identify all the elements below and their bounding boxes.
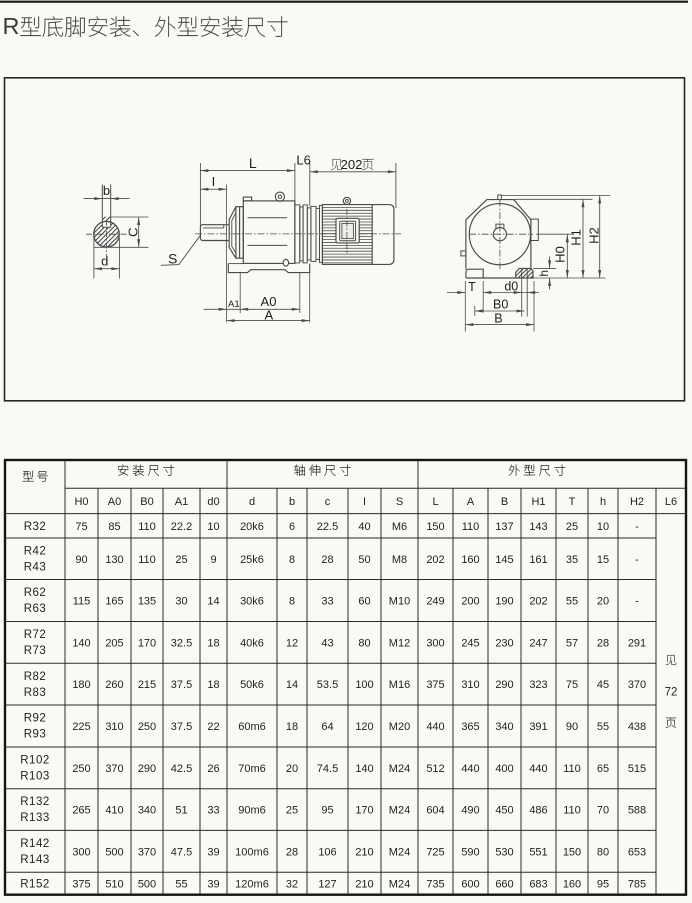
svg-text:H2: H2 — [586, 227, 601, 244]
svg-text:M8: M8 — [392, 554, 407, 566]
svg-text:h: h — [537, 270, 551, 277]
svg-text:S: S — [168, 251, 177, 267]
svg-text:-: - — [635, 554, 639, 566]
svg-text:M6: M6 — [392, 521, 407, 533]
svg-text:683: 683 — [529, 878, 547, 890]
svg-text:30: 30 — [175, 596, 187, 608]
svg-text:T: T — [569, 496, 576, 508]
svg-text:375: 375 — [72, 878, 90, 890]
svg-text:202: 202 — [426, 554, 444, 566]
svg-text:140: 140 — [72, 637, 90, 649]
svg-text:72: 72 — [665, 687, 678, 699]
svg-text:R92: R92 — [24, 713, 47, 725]
svg-text:265: 265 — [72, 805, 90, 817]
svg-text:14: 14 — [207, 596, 219, 608]
svg-text:310: 310 — [461, 679, 479, 691]
svg-text:604: 604 — [426, 805, 444, 817]
svg-text:370: 370 — [138, 846, 156, 858]
svg-text:18: 18 — [207, 679, 219, 691]
svg-text:90: 90 — [566, 721, 578, 733]
svg-text:15: 15 — [597, 554, 609, 566]
svg-text:A: A — [264, 307, 273, 322]
svg-text:R63: R63 — [24, 603, 47, 615]
svg-text:d0: d0 — [207, 496, 219, 508]
svg-text:486: 486 — [529, 805, 547, 817]
svg-text:14: 14 — [286, 679, 298, 691]
svg-text:20: 20 — [286, 763, 298, 775]
svg-text:80: 80 — [358, 637, 370, 649]
svg-text:137: 137 — [495, 521, 513, 533]
svg-text:M24: M24 — [389, 846, 410, 858]
svg-text:95: 95 — [597, 878, 609, 890]
svg-text:R43: R43 — [24, 561, 47, 573]
svg-text:R72: R72 — [24, 629, 47, 641]
svg-text:B0: B0 — [140, 496, 153, 508]
svg-text:735: 735 — [426, 878, 444, 890]
svg-text:9: 9 — [210, 554, 216, 566]
svg-text:25k6: 25k6 — [240, 554, 264, 566]
svg-text:400: 400 — [495, 763, 513, 775]
svg-text:205: 205 — [105, 637, 123, 649]
svg-text:100: 100 — [355, 679, 373, 691]
svg-text:55: 55 — [566, 596, 578, 608]
svg-text:R: R — [3, 13, 20, 39]
svg-text:300: 300 — [426, 637, 444, 649]
svg-text:150: 150 — [426, 521, 444, 533]
svg-text:37.5: 37.5 — [171, 679, 192, 691]
svg-text:160: 160 — [461, 554, 479, 566]
svg-text:R152: R152 — [20, 878, 50, 890]
svg-text:8: 8 — [289, 596, 295, 608]
svg-text:T: T — [468, 280, 476, 294]
svg-text:127: 127 — [318, 878, 336, 890]
svg-text:H0: H0 — [74, 496, 88, 508]
svg-text:210: 210 — [355, 846, 373, 858]
svg-text:160: 160 — [563, 878, 581, 890]
svg-text:291: 291 — [628, 637, 646, 649]
svg-text:39: 39 — [207, 878, 219, 890]
svg-text:H1: H1 — [569, 229, 584, 246]
svg-text:450: 450 — [495, 805, 513, 817]
svg-text:249: 249 — [426, 596, 444, 608]
svg-text:130: 130 — [105, 554, 123, 566]
svg-text:50k6: 50k6 — [240, 679, 264, 691]
svg-text:161: 161 — [529, 554, 547, 566]
svg-text:600: 600 — [461, 878, 479, 890]
svg-text:500: 500 — [105, 846, 123, 858]
svg-text:R142: R142 — [20, 838, 50, 850]
svg-text:R103: R103 — [20, 771, 50, 783]
svg-text:70: 70 — [597, 805, 609, 817]
svg-text:45: 45 — [597, 679, 609, 691]
svg-text:R42: R42 — [24, 545, 47, 557]
svg-text:40: 40 — [358, 521, 370, 533]
svg-text:245: 245 — [461, 637, 479, 649]
svg-text:35: 35 — [566, 554, 578, 566]
svg-text:590: 590 — [461, 846, 479, 858]
svg-text:R32: R32 — [24, 521, 47, 533]
svg-text:110: 110 — [138, 554, 156, 566]
svg-text:22.2: 22.2 — [171, 521, 192, 533]
svg-text:18: 18 — [286, 721, 298, 733]
svg-text:H1: H1 — [531, 496, 545, 508]
svg-text:300: 300 — [72, 846, 90, 858]
svg-text:A: A — [467, 496, 475, 508]
svg-text:515: 515 — [628, 763, 646, 775]
svg-text:106: 106 — [318, 846, 336, 858]
svg-text:165: 165 — [105, 596, 123, 608]
svg-text:440: 440 — [426, 721, 444, 733]
svg-text:90m6: 90m6 — [238, 805, 266, 817]
svg-text:R93: R93 — [24, 729, 47, 741]
svg-text:43: 43 — [321, 637, 333, 649]
svg-text:R132: R132 — [20, 796, 50, 808]
svg-text:70m6: 70m6 — [238, 763, 266, 775]
svg-text:12: 12 — [286, 637, 298, 649]
svg-text:d: d — [249, 496, 255, 508]
svg-text:202: 202 — [529, 596, 547, 608]
svg-text:60m6: 60m6 — [238, 721, 266, 733]
svg-text:725: 725 — [426, 846, 444, 858]
svg-text:370: 370 — [628, 679, 646, 691]
svg-text:26: 26 — [207, 763, 219, 775]
svg-text:512: 512 — [426, 763, 444, 775]
svg-text:340: 340 — [138, 805, 156, 817]
svg-text:20: 20 — [597, 596, 609, 608]
svg-text:60: 60 — [358, 596, 370, 608]
svg-text:120: 120 — [355, 721, 373, 733]
svg-text:R83: R83 — [24, 687, 47, 699]
svg-text:R133: R133 — [20, 812, 50, 824]
svg-text:247: 247 — [529, 637, 547, 649]
svg-text:375: 375 — [426, 679, 444, 691]
svg-text:R102: R102 — [20, 755, 50, 767]
svg-text:M16: M16 — [389, 679, 410, 691]
svg-text:M24: M24 — [389, 763, 410, 775]
svg-text:28: 28 — [597, 637, 609, 649]
svg-text:391: 391 — [529, 721, 547, 733]
svg-text:110: 110 — [563, 763, 581, 775]
svg-text:32.5: 32.5 — [171, 637, 192, 649]
svg-text:365: 365 — [461, 721, 479, 733]
svg-text:250: 250 — [138, 721, 156, 733]
svg-text:A1: A1 — [175, 496, 188, 508]
svg-text:200: 200 — [461, 596, 479, 608]
svg-text:143: 143 — [529, 521, 547, 533]
svg-text:33: 33 — [207, 805, 219, 817]
svg-text:80: 80 — [597, 846, 609, 858]
svg-text:8: 8 — [289, 554, 295, 566]
svg-text:653: 653 — [628, 846, 646, 858]
svg-text:438: 438 — [628, 721, 646, 733]
svg-text:b: b — [103, 183, 110, 198]
svg-text:42.5: 42.5 — [171, 763, 192, 775]
svg-text:A0: A0 — [108, 496, 121, 508]
svg-text:B: B — [501, 496, 508, 508]
svg-text:588: 588 — [628, 805, 646, 817]
svg-text:170: 170 — [355, 805, 373, 817]
svg-text:B0: B0 — [493, 297, 508, 311]
svg-text:500: 500 — [138, 878, 156, 890]
svg-text:57: 57 — [566, 637, 578, 649]
svg-text:410: 410 — [105, 805, 123, 817]
svg-text:230: 230 — [495, 637, 513, 649]
svg-text:95: 95 — [321, 805, 333, 817]
svg-text:28: 28 — [286, 846, 298, 858]
svg-text:L: L — [249, 155, 257, 171]
svg-text:225: 225 — [72, 721, 90, 733]
svg-text:290: 290 — [495, 679, 513, 691]
svg-text:H0: H0 — [553, 246, 568, 263]
svg-text:260: 260 — [105, 679, 123, 691]
svg-text:47.5: 47.5 — [171, 846, 192, 858]
svg-text:25: 25 — [175, 554, 187, 566]
svg-text:55: 55 — [175, 878, 187, 890]
svg-text:250: 250 — [72, 763, 90, 775]
svg-text:530: 530 — [495, 846, 513, 858]
svg-text:b: b — [289, 496, 295, 508]
svg-text:490: 490 — [461, 805, 479, 817]
svg-text:C: C — [125, 228, 140, 237]
svg-text:I: I — [363, 496, 366, 508]
svg-text:215: 215 — [138, 679, 156, 691]
svg-text:32: 32 — [286, 878, 298, 890]
svg-text:100m6: 100m6 — [235, 846, 269, 858]
svg-text:25: 25 — [286, 805, 298, 817]
svg-text:190: 190 — [495, 596, 513, 608]
svg-text:370: 370 — [105, 763, 123, 775]
svg-text:18: 18 — [207, 637, 219, 649]
svg-text:d: d — [101, 253, 108, 268]
svg-text:440: 440 — [461, 763, 479, 775]
svg-text:39: 39 — [207, 846, 219, 858]
svg-text:660: 660 — [495, 878, 513, 890]
svg-text:6: 6 — [289, 521, 295, 533]
svg-text:M10: M10 — [389, 596, 410, 608]
svg-text:L: L — [432, 496, 438, 508]
svg-text:R73: R73 — [24, 645, 47, 657]
svg-text:65: 65 — [597, 763, 609, 775]
svg-text:A1: A1 — [228, 299, 240, 310]
svg-text:440: 440 — [529, 763, 547, 775]
svg-text:140: 140 — [355, 763, 373, 775]
svg-text:180: 180 — [72, 679, 90, 691]
svg-text:I: I — [212, 174, 216, 189]
svg-text:115: 115 — [73, 596, 91, 608]
svg-text:33: 33 — [321, 596, 333, 608]
svg-text:551: 551 — [529, 846, 547, 858]
svg-text:202: 202 — [340, 157, 362, 172]
svg-text:28: 28 — [321, 554, 333, 566]
svg-text:110: 110 — [462, 521, 480, 533]
svg-text:37.5: 37.5 — [171, 721, 192, 733]
svg-text:d0: d0 — [504, 280, 518, 294]
svg-text:M12: M12 — [389, 637, 410, 649]
svg-text:145: 145 — [495, 554, 513, 566]
svg-text:75: 75 — [75, 521, 87, 533]
svg-text:55: 55 — [597, 721, 609, 733]
svg-text:170: 170 — [138, 637, 156, 649]
svg-text:74.5: 74.5 — [317, 763, 338, 775]
svg-text:110: 110 — [563, 805, 581, 817]
svg-text:M20: M20 — [389, 721, 410, 733]
svg-text:B: B — [494, 311, 502, 325]
svg-text:51: 51 — [175, 805, 187, 817]
svg-text:22.5: 22.5 — [317, 521, 338, 533]
svg-text:R143: R143 — [20, 854, 50, 866]
svg-text:340: 340 — [495, 721, 513, 733]
svg-text:75: 75 — [566, 679, 578, 691]
svg-text:h: h — [600, 496, 606, 508]
svg-text:135: 135 — [138, 596, 156, 608]
svg-text:323: 323 — [529, 679, 547, 691]
svg-text:L6: L6 — [665, 496, 677, 508]
svg-text:M24: M24 — [389, 805, 410, 817]
svg-text:-: - — [635, 521, 639, 533]
svg-text:R62: R62 — [24, 587, 47, 599]
svg-text:110: 110 — [138, 521, 156, 533]
svg-text:85: 85 — [108, 521, 120, 533]
svg-text:510: 510 — [105, 878, 123, 890]
svg-text:150: 150 — [563, 846, 581, 858]
svg-text:L6: L6 — [296, 153, 310, 168]
svg-text:40k6: 40k6 — [240, 637, 264, 649]
svg-text:M24: M24 — [389, 878, 410, 890]
svg-text:H2: H2 — [630, 496, 644, 508]
svg-text:210: 210 — [355, 878, 373, 890]
svg-text:-: - — [635, 596, 639, 608]
svg-text:120m6: 120m6 — [235, 878, 269, 890]
svg-text:90: 90 — [75, 554, 87, 566]
svg-text:10: 10 — [207, 521, 219, 533]
svg-text:R82: R82 — [24, 671, 47, 683]
svg-text:S: S — [396, 496, 403, 508]
svg-text:10: 10 — [597, 521, 609, 533]
svg-text:310: 310 — [105, 721, 123, 733]
svg-text:25: 25 — [566, 521, 578, 533]
svg-text:290: 290 — [138, 763, 156, 775]
svg-text:20k6: 20k6 — [240, 521, 264, 533]
svg-text:30k6: 30k6 — [240, 596, 264, 608]
svg-text:50: 50 — [358, 554, 370, 566]
svg-text:22: 22 — [207, 721, 219, 733]
svg-text:785: 785 — [628, 878, 646, 890]
svg-text:c: c — [325, 496, 331, 508]
svg-text:53.5: 53.5 — [317, 679, 338, 691]
svg-text:64: 64 — [321, 721, 333, 733]
